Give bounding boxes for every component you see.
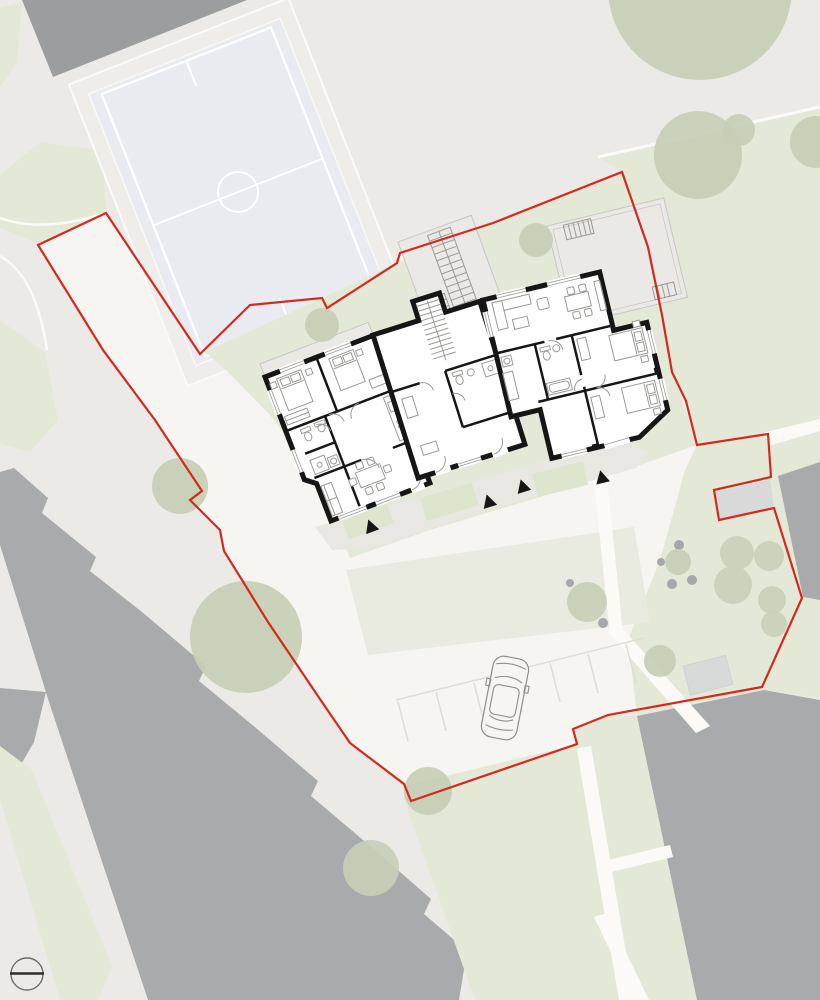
shrub [714, 566, 752, 604]
tree [404, 767, 452, 815]
shrub [720, 536, 754, 570]
site-plan [0, 0, 820, 1000]
tree [190, 581, 302, 693]
bench-dot [667, 579, 677, 589]
bench-dot [598, 618, 608, 628]
shrub [754, 541, 784, 571]
tree [644, 645, 676, 677]
shrub [758, 586, 786, 614]
tree [519, 223, 553, 257]
tree [567, 582, 607, 622]
tree [665, 549, 691, 575]
bench-dot [566, 579, 574, 587]
tree [305, 308, 339, 342]
shrub [761, 611, 787, 637]
bench-dot [687, 575, 697, 585]
tree [723, 114, 755, 146]
tree [343, 840, 399, 896]
bench-dot [657, 558, 665, 566]
bench-dot [674, 540, 684, 550]
